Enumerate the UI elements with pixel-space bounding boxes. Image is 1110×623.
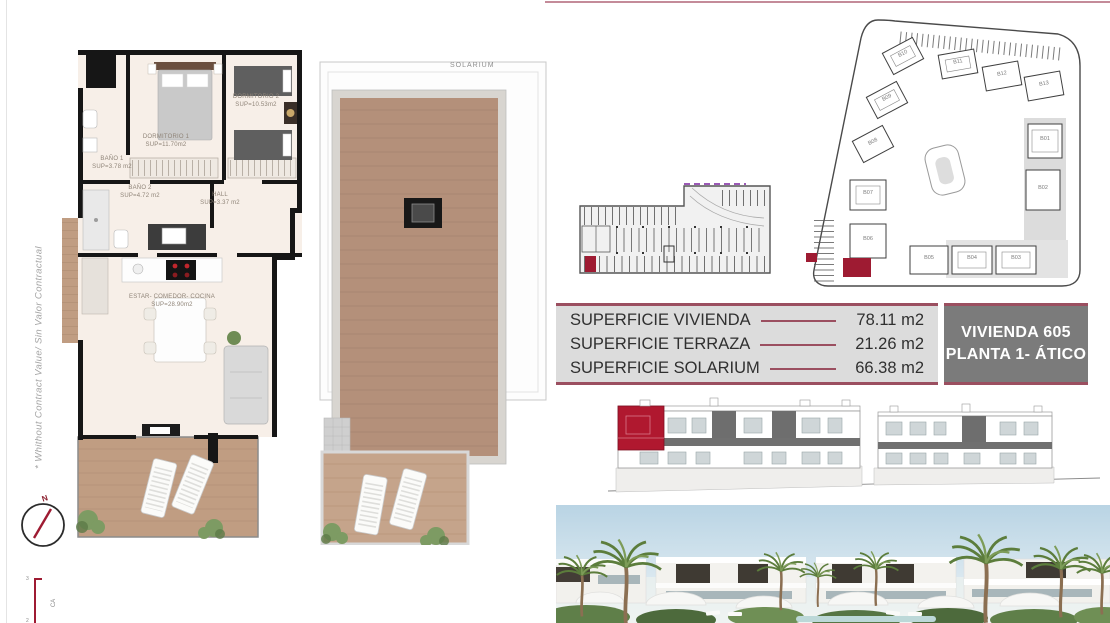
- room-label-bano-2: BAÑO 2 SUP=4.72 m2: [100, 185, 180, 201]
- garage-plan: [572, 168, 777, 283]
- unit-floor: PLANTA 1- ÁTICO: [946, 344, 1087, 366]
- brochure-page: * Whithout Contract Value/ Sin Valor Con…: [0, 0, 1110, 623]
- vertical-disclaimer: * Whithout Contract Value/ Sin Valor Con…: [34, 222, 45, 494]
- building-label-b04: B04: [961, 255, 983, 261]
- highlighted-unit-elevation: [618, 406, 664, 450]
- building-label-b05: B05: [918, 255, 940, 261]
- table-row: SUPERFICIE TERRAZA 21.26 m2: [570, 332, 924, 356]
- leader-line: [760, 344, 836, 346]
- site-plan: B01 B02 B03 B04 B05 B06 B07 B08 B09 B10 …: [800, 8, 1100, 293]
- building-label-b01: B01: [1034, 136, 1056, 142]
- highlighted-parking-space: [585, 256, 596, 272]
- elevation-drawing: [604, 392, 1104, 497]
- render-photo: [556, 505, 1110, 623]
- scale-number-bottom: 2: [26, 618, 29, 623]
- solarium-drawing: [318, 50, 550, 545]
- leader-line: [770, 368, 836, 370]
- room-label-estar: ESTAR- COMEDOR- COCINA SUP=28.90m2: [114, 294, 230, 310]
- room-label-bano-1: BAÑO 1 SUP=3.78 m2: [80, 156, 144, 172]
- building-label-b02: B02: [1032, 185, 1054, 191]
- highlighted-parking-site: [806, 253, 817, 262]
- building-label-b07: B07: [857, 190, 879, 196]
- solarium-label: SOLARIUM: [450, 62, 495, 69]
- north-needle-icon: [34, 509, 51, 538]
- elevations: [604, 392, 1104, 497]
- room-label-hall: HALL SUP=3.37 m2: [190, 192, 250, 208]
- unit-number: VIVIENDA 605: [961, 322, 1071, 344]
- scale-bar: 3 2 CA: [26, 576, 66, 623]
- room-label-dormitorio-1: DORMITORIO 1 SUP=11.70m2: [118, 134, 214, 150]
- garage-drawing: [572, 168, 777, 283]
- site-plan-drawing: [800, 8, 1100, 293]
- page-edge-line: [6, 0, 7, 623]
- scale-caption: CA: [51, 599, 57, 607]
- top-rule: [545, 1, 1110, 3]
- render-illustration: [556, 505, 1110, 623]
- solarium-plan: SOLARIUM: [318, 50, 550, 545]
- table-row: SUPERFICIE VIVIENDA 78.11 m2: [570, 308, 924, 332]
- surface-table-panel: SUPERFICIE VIVIENDA 78.11 m2 SUPERFICIE …: [556, 303, 938, 385]
- table-row: SUPERFICIE SOLARIUM 66.38 m2: [570, 356, 924, 380]
- building-label-b06: B06: [857, 236, 879, 242]
- surface-table: SUPERFICIE VIVIENDA 78.11 m2 SUPERFICIE …: [556, 303, 1088, 385]
- scale-bracket-icon: [34, 578, 42, 623]
- scale-number-top: 3: [26, 576, 29, 582]
- highlighted-unit-b06: [843, 258, 871, 277]
- compass: N: [14, 494, 72, 552]
- leader-line: [761, 320, 836, 322]
- floor-plan: DORMITORIO 1 SUP=11.70m2 DORMITORIO 2 SU…: [62, 50, 312, 542]
- building-label-b03: B03: [1005, 255, 1027, 261]
- unit-badge: VIVIENDA 605 PLANTA 1- ÁTICO: [944, 303, 1088, 385]
- room-label-dormitorio-2: DORMITORIO 2 SUP=10.53m2: [218, 94, 294, 110]
